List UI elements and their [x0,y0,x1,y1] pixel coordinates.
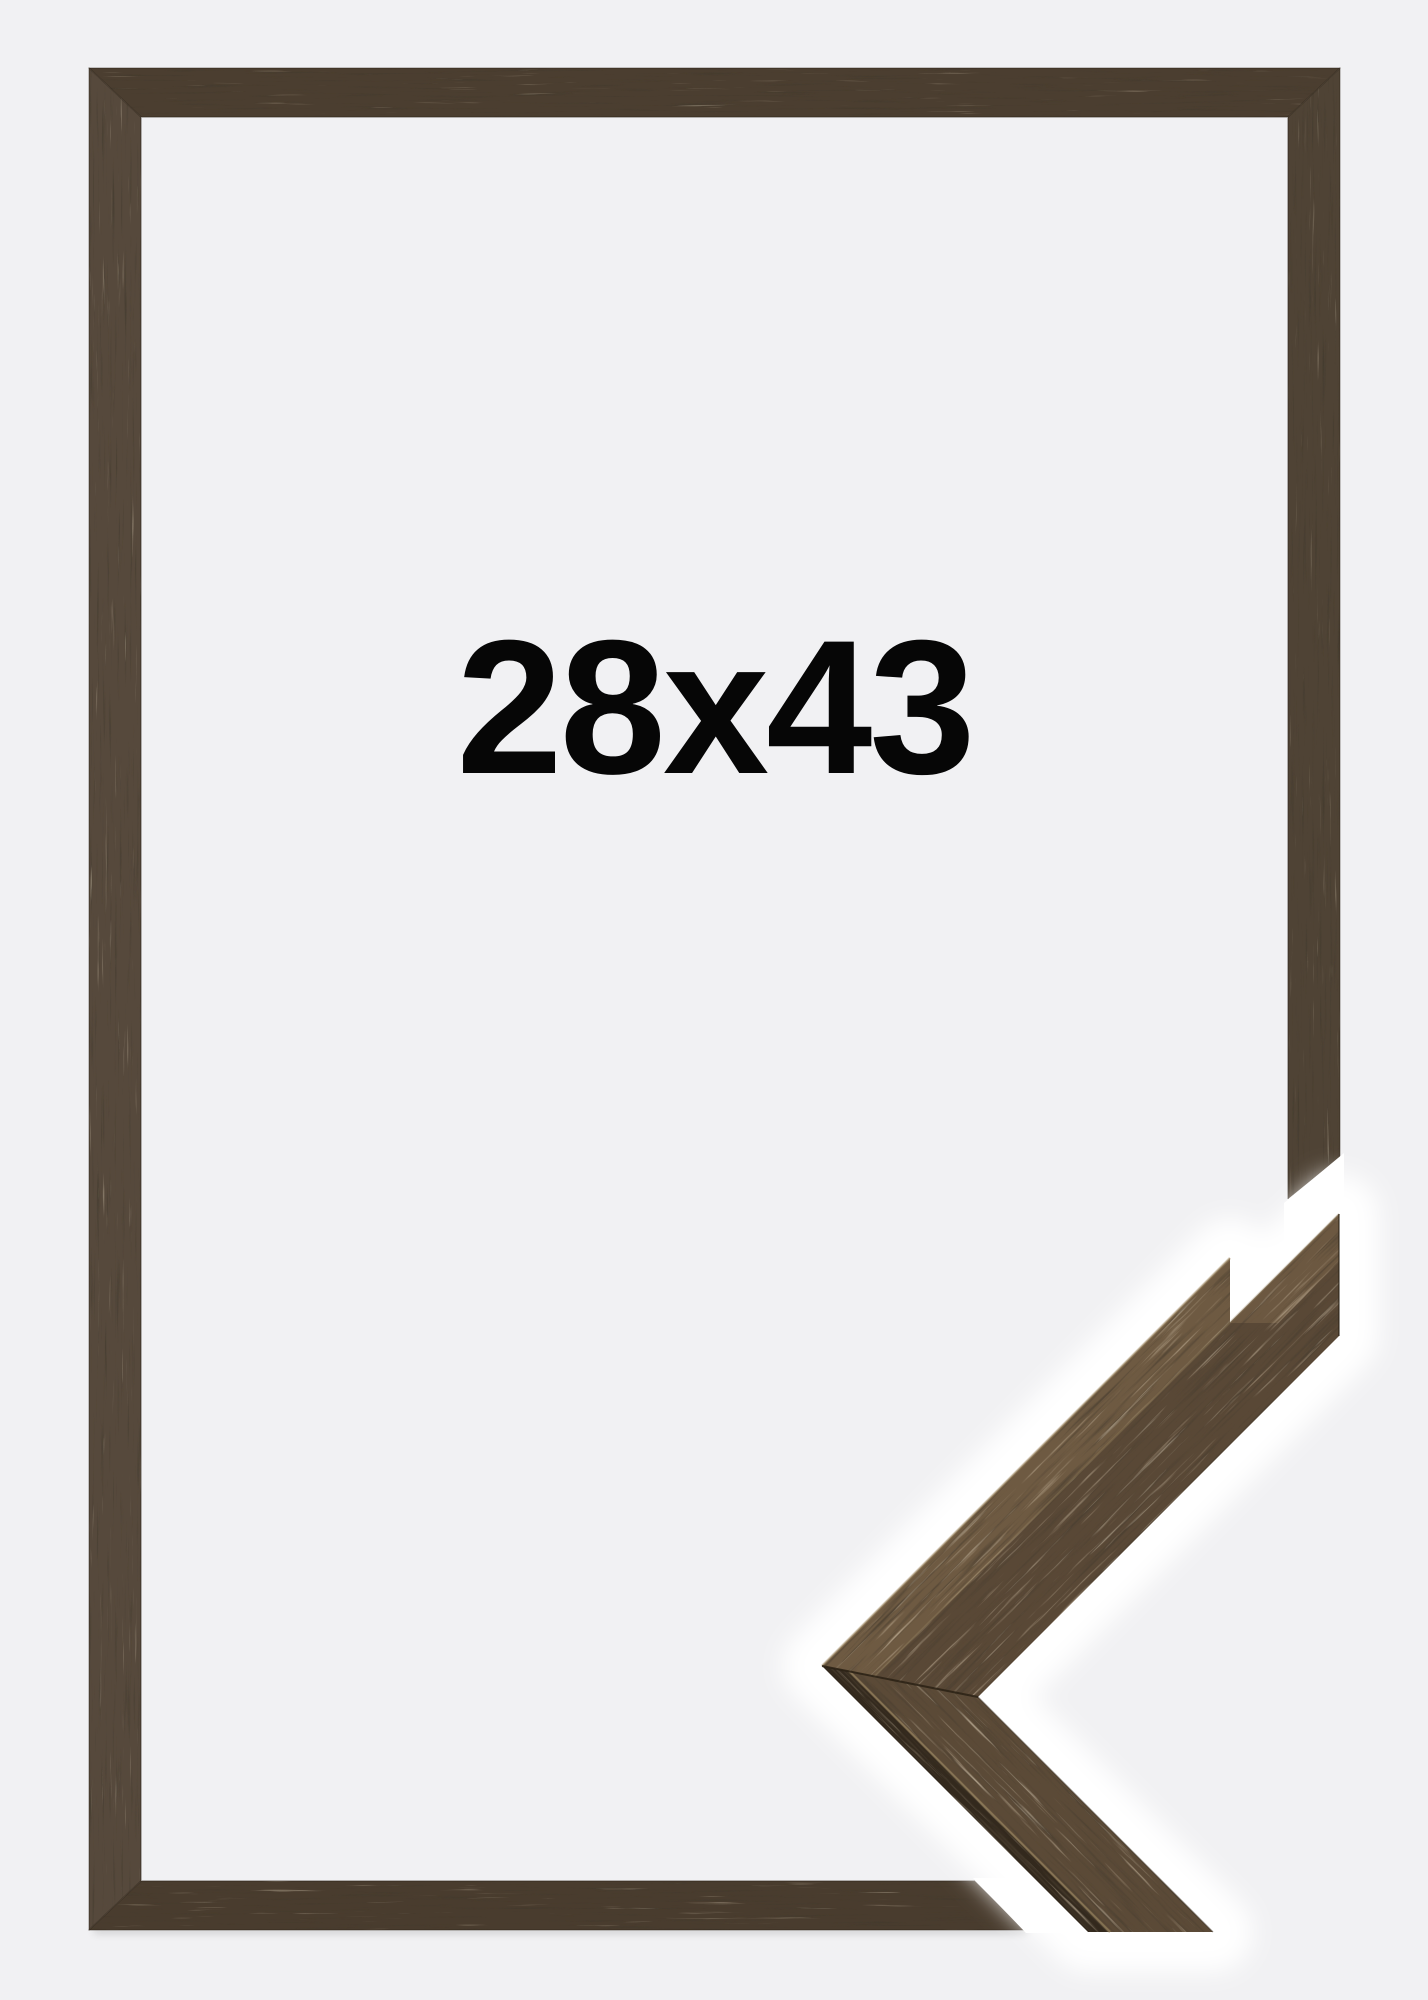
frame-miter-seams [89,68,1340,1930]
frame-grain-horizontal [89,68,1340,1930]
frame-product-canvas [0,0,1428,2000]
flat-frame [89,68,1340,1930]
size-label: 28x43 [141,612,1288,812]
product-image-page: { "product": { "size_label": "28x43" }, … [0,0,1428,2000]
frame-grain-vertical [89,68,1340,1930]
frame-outer-edge-line [89,68,1340,1930]
frame-inner-edge-line [141,117,1288,1881]
